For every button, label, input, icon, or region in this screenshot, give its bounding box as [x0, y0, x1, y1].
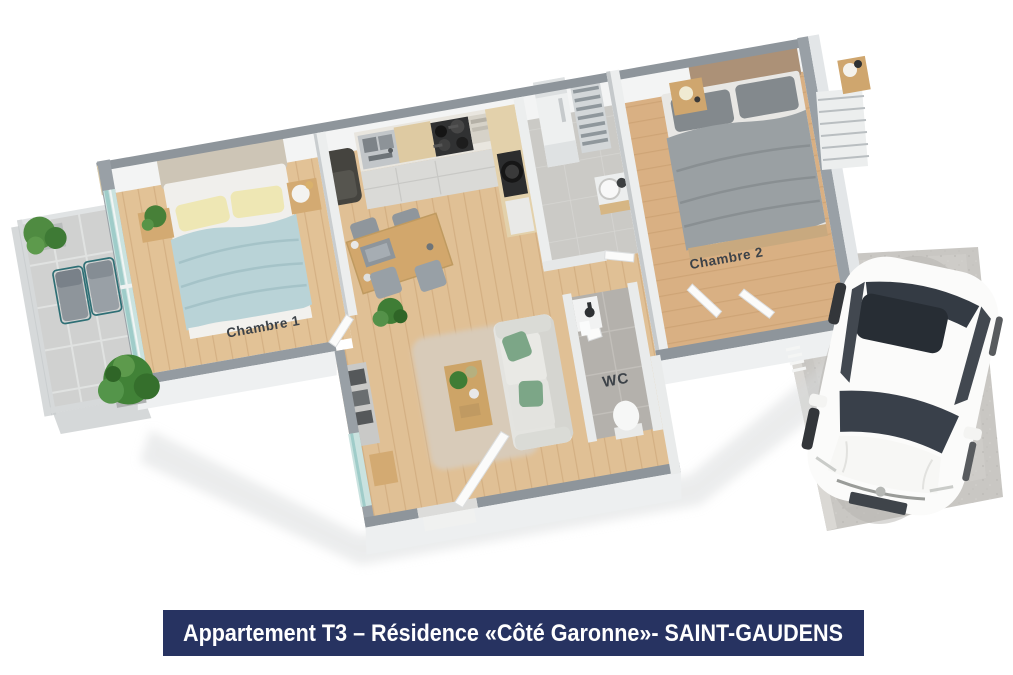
svg-text:Appartement T3 – Résidence «Cô: Appartement T3 – Résidence «Côté Garonne… [183, 620, 843, 647]
